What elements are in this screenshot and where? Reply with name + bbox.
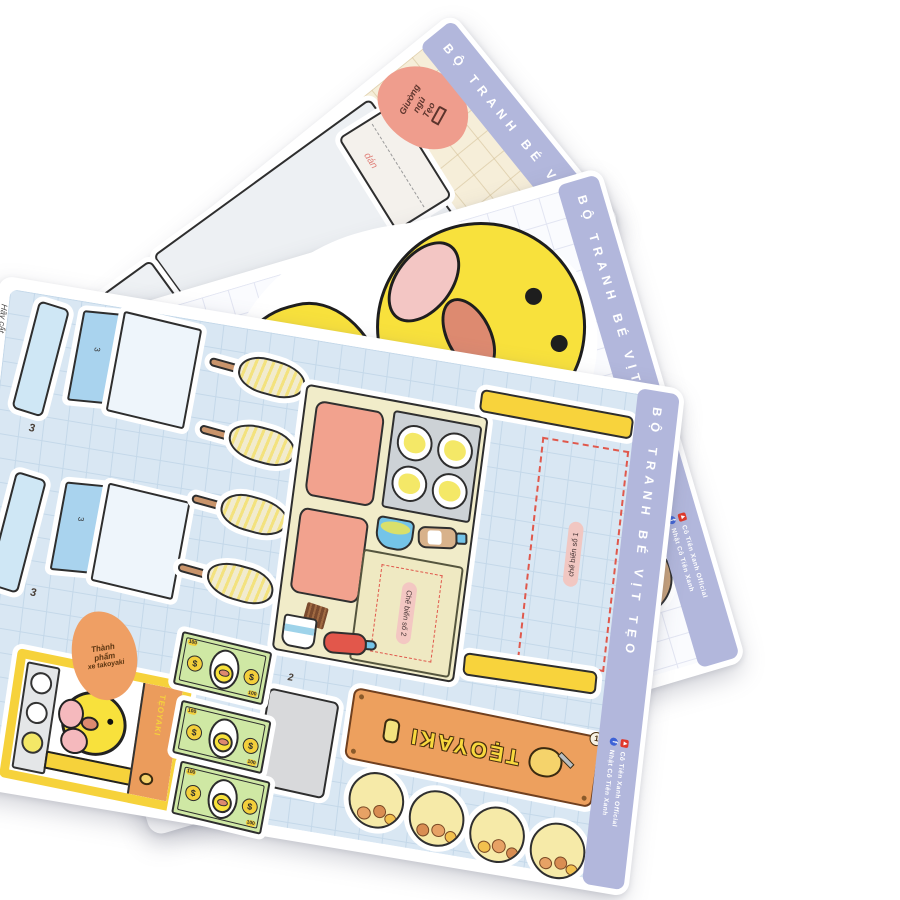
batter-bowl	[374, 515, 416, 554]
piece-number-note: 2	[287, 672, 294, 684]
banner-text: TẸOYAKI	[407, 723, 521, 769]
griddle-mold	[435, 429, 475, 471]
mini-counter	[44, 751, 137, 787]
youtube-icon	[677, 512, 687, 522]
product-photo: dán Giường ngủ Tẹo BỘ TRANH BÉ VỊT TẸO	[0, 0, 900, 900]
sauce-bottle	[418, 524, 470, 552]
griddle-mold	[429, 470, 469, 512]
griddle-mold	[394, 421, 434, 463]
facebook-icon: f	[609, 737, 618, 746]
bottle-cap	[455, 532, 467, 545]
ketchup-body	[323, 631, 367, 657]
griddle-mold	[389, 462, 429, 504]
topping	[539, 856, 553, 870]
tools-panel: Chế biến số 2	[272, 383, 489, 683]
social-links: Cô Tiên Xanh Official f Nhật Cô Tiên Xan…	[598, 734, 631, 829]
mini-duck	[47, 682, 139, 789]
cooking-mat	[304, 400, 385, 508]
stand-number-label: 3	[92, 347, 102, 352]
stand-number-label: 3	[76, 516, 86, 521]
topping	[416, 822, 430, 837]
glue-flap-label: dán	[361, 151, 379, 171]
youtube-icon	[620, 739, 629, 748]
topping	[491, 838, 506, 854]
finished-note-line: xe takoyaki	[87, 658, 125, 671]
topping	[477, 840, 491, 854]
steam-doodle	[382, 717, 401, 744]
batter	[380, 519, 411, 536]
bottle-label	[428, 530, 442, 545]
fork-doodle	[558, 752, 575, 769]
takoyaki-doodle	[527, 744, 565, 780]
mini-mold	[29, 670, 54, 696]
station-1-label: chế biến số 1	[562, 521, 584, 588]
takoyaki-griddle	[381, 410, 482, 524]
mini-banner-text: TẸOYAKI	[152, 694, 167, 737]
mini-mold	[24, 700, 49, 726]
ketchup-bottle	[323, 628, 381, 661]
mini-doodle	[138, 772, 154, 787]
ketchup-cap	[365, 640, 377, 651]
mini-mold	[20, 730, 45, 756]
topping	[356, 805, 371, 820]
